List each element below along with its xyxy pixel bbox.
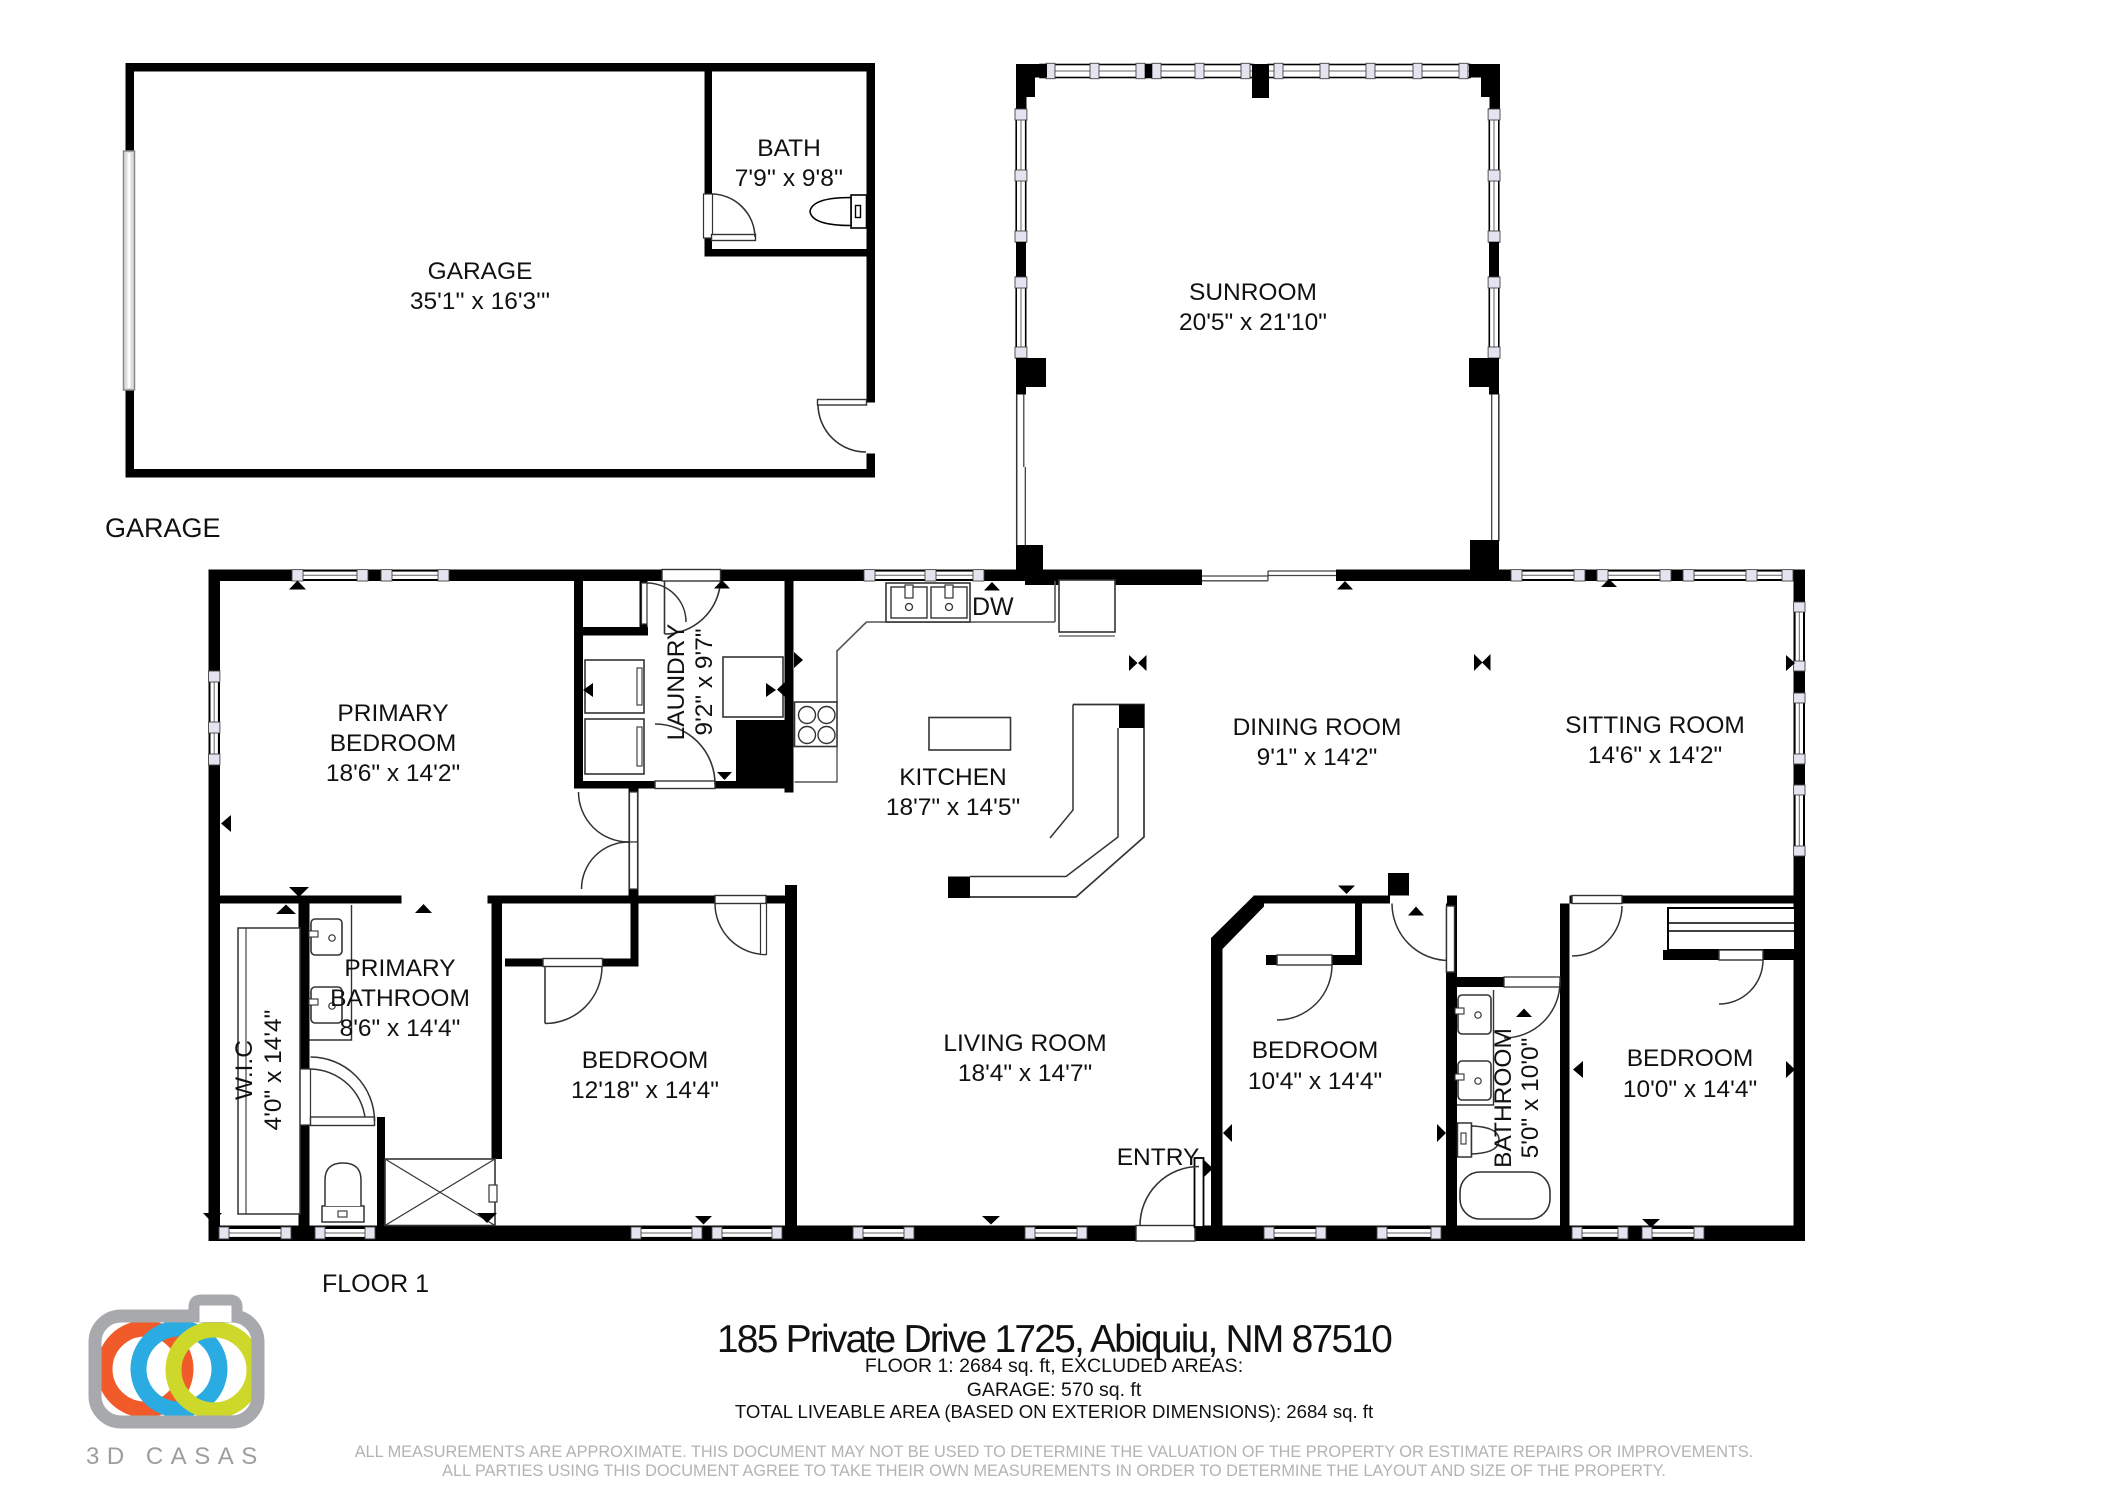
svg-text:FLOOR 1: 2684 sq. ft, EXCLUDED: FLOOR 1: 2684 sq. ft, EXCLUDED AREAS: <box>865 1355 1243 1377</box>
svg-text:8'6" x 14'4": 8'6" x 14'4" <box>340 1015 461 1042</box>
svg-text:GARAGE: GARAGE <box>428 258 533 285</box>
svg-text:SITTING ROOM: SITTING ROOM <box>1565 712 1745 739</box>
svg-text:10'0" x 14'4": 10'0" x 14'4" <box>1623 1076 1757 1103</box>
svg-text:9'1" x 14'2": 9'1" x 14'2" <box>1257 744 1378 771</box>
svg-text:10'4" x 14'4": 10'4" x 14'4" <box>1248 1068 1382 1095</box>
svg-text:LAUNDRY: LAUNDRY <box>663 624 690 741</box>
svg-text:7'9'' x 9'8'': 7'9'' x 9'8'' <box>735 165 843 192</box>
svg-text:14'6" x 14'2": 14'6" x 14'2" <box>1588 742 1722 769</box>
svg-text:PRIMARY: PRIMARY <box>337 700 448 727</box>
svg-text:20'5" x 21'10": 20'5" x 21'10" <box>1179 309 1327 336</box>
svg-text:FLOOR 1: FLOOR 1 <box>322 1270 429 1298</box>
svg-text:TOTAL LIVEABLE AREA (BASED ON: TOTAL LIVEABLE AREA (BASED ON EXTERIOR D… <box>735 1401 1374 1422</box>
svg-text:LIVING ROOM: LIVING ROOM <box>943 1030 1106 1057</box>
svg-text:18'4" x 14'7": 18'4" x 14'7" <box>958 1060 1092 1087</box>
svg-text:SUNROOM: SUNROOM <box>1189 279 1317 306</box>
svg-text:5'0" x 10'0": 5'0" x 10'0" <box>1517 1038 1544 1159</box>
svg-text:9'2" x 9'7": 9'2" x 9'7" <box>691 628 718 735</box>
svg-text:ALL MEASUREMENTS ARE APPROXIMA: ALL MEASUREMENTS ARE APPROXIMATE. THIS D… <box>355 1443 1754 1461</box>
svg-text:4'0" x 14'4": 4'0" x 14'4" <box>260 1010 287 1131</box>
svg-text:18'6" x 14'2": 18'6" x 14'2" <box>326 760 460 787</box>
svg-text:PRIMARY: PRIMARY <box>344 955 455 982</box>
svg-text:W.I.C: W.I.C <box>231 1040 258 1100</box>
svg-text:18'7" x 14'5": 18'7" x 14'5" <box>886 794 1020 821</box>
svg-text:3D CASAS: 3D CASAS <box>86 1443 265 1470</box>
svg-text:BEDROOM: BEDROOM <box>1252 1037 1379 1064</box>
svg-text:BEDROOM: BEDROOM <box>1627 1045 1754 1072</box>
svg-text:BATH: BATH <box>757 135 821 162</box>
svg-text:35'1'' x 16'3''': 35'1'' x 16'3''' <box>410 288 550 315</box>
svg-text:GARAGE: 570 sq. ft: GARAGE: 570 sq. ft <box>967 1379 1142 1401</box>
svg-text:BEDROOM: BEDROOM <box>582 1047 709 1074</box>
svg-text:12'18" x 14'4": 12'18" x 14'4" <box>571 1077 719 1104</box>
svg-text:DINING ROOM: DINING ROOM <box>1233 714 1402 741</box>
svg-text:GARAGE: GARAGE <box>105 513 221 543</box>
svg-text:DW: DW <box>972 593 1014 621</box>
svg-text:ALL PARTIES USING THIS DOCUMEN: ALL PARTIES USING THIS DOCUMENT AGREE TO… <box>442 1462 1666 1480</box>
svg-text:BEDROOM: BEDROOM <box>330 730 457 757</box>
svg-text:ENTRY: ENTRY <box>1117 1144 1200 1171</box>
svg-text:KITCHEN: KITCHEN <box>899 764 1007 791</box>
svg-text:BATHROOM: BATHROOM <box>330 985 470 1012</box>
svg-text:BATHROOM: BATHROOM <box>1490 1028 1517 1168</box>
